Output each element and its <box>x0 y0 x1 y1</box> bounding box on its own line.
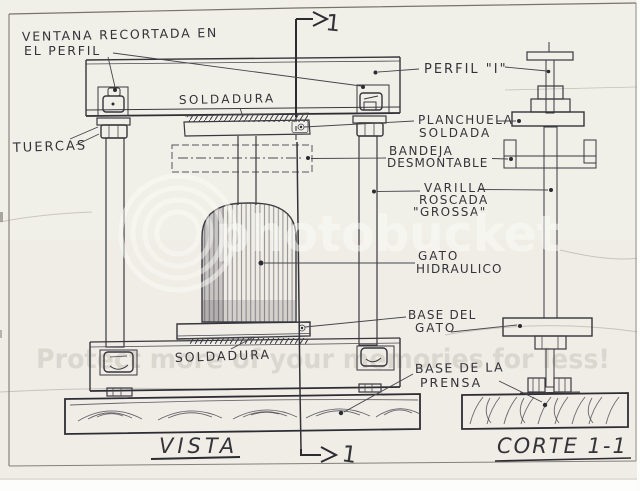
scanned-sketch-page: Protect more of your memories for less! <box>0 0 640 491</box>
label-planchuela-line1: PLANCHUELA <box>418 113 513 127</box>
label-base-prensa-line1: BASE DE LA <box>415 359 504 376</box>
label-tuercas: TUERCAS <box>12 138 88 156</box>
title-corte: CORTE 1-1 <box>497 434 628 458</box>
label-ventana-line2: EL PERFIL <box>24 43 101 58</box>
watermark-center-text: photobucket <box>215 205 560 263</box>
label-base-gato-line2: GATO <box>415 321 456 335</box>
label-perfil-i: PERFIL "I" <box>424 62 508 77</box>
section-marker-top: 1 <box>324 10 341 37</box>
label-base-prensa-line2: PRENSA <box>420 375 482 390</box>
label-base-gato-line1: BASE DEL <box>408 308 477 322</box>
label-soldadura-top: SOLDADURA <box>179 91 276 107</box>
sketch-svg: Protect more of your memories for less! <box>0 0 640 491</box>
label-gato-line2: HIDRAULICO <box>416 262 503 276</box>
title-vista: VISTA <box>159 434 238 458</box>
label-planchuela-line2: SOLDADA <box>419 126 491 140</box>
watermark-bottom-text: Protect more of your memories for less! <box>36 344 610 375</box>
label-bandeja-line2: DESMONTABLE <box>387 156 488 170</box>
